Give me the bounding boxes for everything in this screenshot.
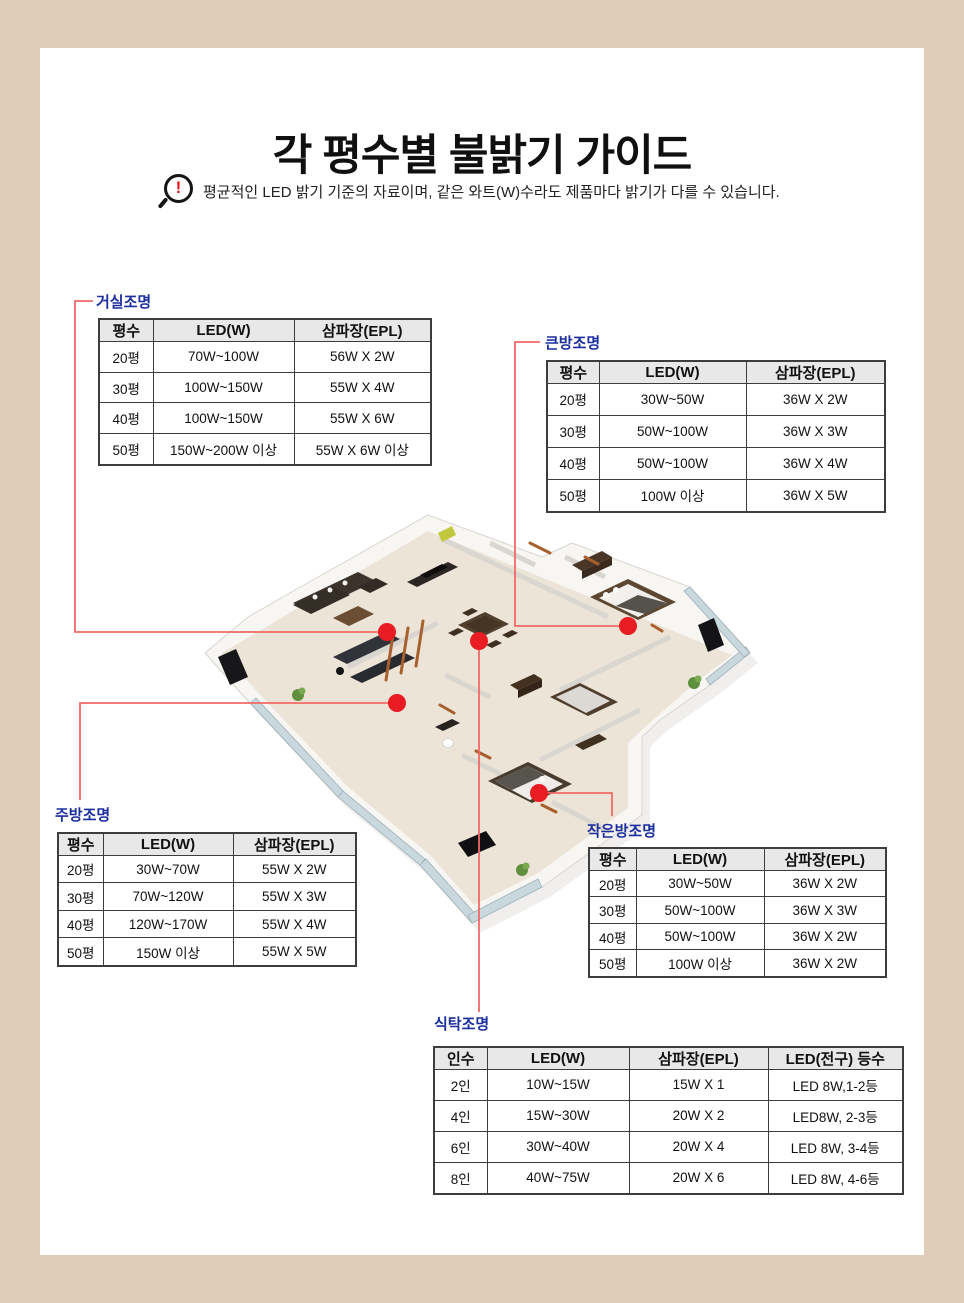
callout-label-living: 거실조명 [96,291,151,312]
table-cell: 30평 [99,372,153,403]
column-header: 삼파장(EPL) [294,319,431,342]
table-header-row: 평수LED(W)삼파장(EPL) [99,319,431,342]
table-cell: 40평 [589,923,636,949]
table-cell: LED 8W, 3-4등 [768,1131,903,1162]
table-cell: 36W X 4W [746,447,885,479]
table-cell: 20평 [99,342,153,373]
table-row: 40평50W~100W36W X 4W [547,447,885,479]
table-cell: 30W~70W [103,856,233,883]
smallroom-guide-table: 평수LED(W)삼파장(EPL)20평30W~50W36W X 2W30평50W… [588,847,887,978]
table-row: 30평70W~120W55W X 3W [58,883,356,910]
table-cell: 50W~100W [636,923,764,949]
table-header-row: 인수LED(W)삼파장(EPL)LED(전구) 등수 [434,1047,903,1070]
table-cell: 20평 [58,856,103,883]
table-cell: 30W~40W [487,1131,629,1162]
table-cell: 40평 [547,447,599,479]
table-cell: 40평 [58,910,103,937]
table-row: 40평50W~100W36W X 2W [589,923,886,949]
table-cell: LED 8W, 4-6등 [768,1162,903,1194]
table-cell: LED8W, 2-3등 [768,1100,903,1131]
table-cell: 50W~100W [599,447,746,479]
table-cell: 20평 [547,384,599,416]
table-row: 20평30W~50W36W X 2W [547,384,885,416]
table-row: 50평150W 이상55W X 5W [58,938,356,966]
table-cell: 30W~50W [636,871,764,897]
table-cell: 30평 [589,897,636,923]
table-cell: 150W~200W 이상 [153,434,294,465]
dining-table-container: 인수LED(W)삼파장(EPL)LED(전구) 등수2인10W~15W15W X… [433,1046,902,1195]
callout-label-kitchen: 주방조명 [55,804,110,825]
table-row: 20평30W~70W55W X 2W [58,856,356,883]
column-header: LED(W) [599,361,746,384]
table-cell: 6인 [434,1131,487,1162]
table-cell: 100W 이상 [599,479,746,512]
column-header: 평수 [589,848,636,871]
table-cell: 36W X 2W [764,923,886,949]
table-row: 4인15W~30W20W X 2LED8W, 2-3등 [434,1100,903,1131]
callout-label-smallroom: 작은방조명 [587,820,656,841]
table-cell: 100W~150W [153,403,294,434]
living-guide-table: 평수LED(W)삼파장(EPL)20평70W~100W56W X 2W30평10… [98,318,432,466]
table-cell: 55W X 4W [233,910,356,937]
table-cell: 50평 [547,479,599,512]
table-cell: 120W~170W [103,910,233,937]
column-header: 삼파장(EPL) [746,361,885,384]
table-cell: 50평 [589,950,636,977]
table-row: 40평120W~170W55W X 4W [58,910,356,937]
table-cell: 20W X 6 [629,1162,768,1194]
table-cell: 36W X 2W [764,871,886,897]
table-cell: 100W 이상 [636,950,764,977]
table-row: 40평100W~150W55W X 6W [99,403,431,434]
table-cell: 36W X 2W [764,950,886,977]
table-cell: LED 8W,1-2등 [768,1070,903,1101]
dining-guide-table: 인수LED(W)삼파장(EPL)LED(전구) 등수2인10W~15W15W X… [433,1046,904,1195]
table-row: 30평100W~150W55W X 4W [99,372,431,403]
callout-label-bigroom: 큰방조명 [545,332,600,353]
living-table-container: 평수LED(W)삼파장(EPL)20평70W~100W56W X 2W30평10… [98,318,430,466]
table-cell: 50평 [58,938,103,966]
table-header-row: 평수LED(W)삼파장(EPL) [547,361,885,384]
kitchen-table-container: 평수LED(W)삼파장(EPL)20평30W~70W55W X 2W30평70W… [57,832,355,967]
table-cell: 50평 [99,434,153,465]
table-cell: 36W X 5W [746,479,885,512]
table-cell: 15W~30W [487,1100,629,1131]
table-cell: 55W X 2W [233,856,356,883]
table-cell: 10W~15W [487,1070,629,1101]
column-header: 삼파장(EPL) [764,848,886,871]
table-cell: 20평 [589,871,636,897]
table-cell: 40W~75W [487,1162,629,1194]
bigroom-guide-table: 평수LED(W)삼파장(EPL)20평30W~50W36W X 2W30평50W… [546,360,886,513]
infographic-page: { "page": { "title": "각 평수별 불밝기 가이드", "n… [0,0,964,1303]
column-header: 인수 [434,1047,487,1070]
table-cell: 55W X 6W 이상 [294,434,431,465]
table-cell: 20W X 2 [629,1100,768,1131]
table-row: 6인30W~40W20W X 4LED 8W, 3-4등 [434,1131,903,1162]
page-title: 각 평수별 불밝기 가이드 [40,121,924,183]
smallroom-table-container: 평수LED(W)삼파장(EPL)20평30W~50W36W X 2W30평50W… [588,847,885,978]
table-cell: 70W~120W [103,883,233,910]
kitchen-guide-table: 평수LED(W)삼파장(EPL)20평30W~70W55W X 2W30평70W… [57,832,357,967]
table-cell: 30평 [547,415,599,447]
table-cell: 40평 [99,403,153,434]
column-header: LED(전구) 등수 [768,1047,903,1070]
notice-text: 평균적인 LED 밝기 기준의 자료이며, 같은 와트(W)수라도 제품마다 밝… [203,183,883,202]
bigroom-table-container: 평수LED(W)삼파장(EPL)20평30W~50W36W X 2W30평50W… [546,360,884,513]
table-cell: 55W X 3W [233,883,356,910]
table-cell: 55W X 5W [233,938,356,966]
table-cell: 4인 [434,1100,487,1131]
column-header: 평수 [58,833,103,856]
column-header: LED(W) [103,833,233,856]
table-cell: 8인 [434,1162,487,1194]
table-cell: 36W X 3W [764,897,886,923]
column-header: 평수 [547,361,599,384]
table-cell: 100W~150W [153,372,294,403]
table-row: 2인10W~15W15W X 1LED 8W,1-2등 [434,1070,903,1101]
table-cell: 55W X 6W [294,403,431,434]
table-row: 50평150W~200W 이상55W X 6W 이상 [99,434,431,465]
column-header: LED(W) [153,319,294,342]
table-cell: 70W~100W [153,342,294,373]
table-row: 50평100W 이상36W X 2W [589,950,886,977]
magnifier-exclamation-icon [164,174,193,203]
column-header: 삼파장(EPL) [233,833,356,856]
table-row: 20평70W~100W56W X 2W [99,342,431,373]
column-header: 평수 [99,319,153,342]
table-cell: 50W~100W [599,415,746,447]
table-cell: 56W X 2W [294,342,431,373]
table-cell: 36W X 2W [746,384,885,416]
column-header: 삼파장(EPL) [629,1047,768,1070]
column-header: LED(W) [487,1047,629,1070]
table-cell: 20W X 4 [629,1131,768,1162]
table-cell: 55W X 4W [294,372,431,403]
table-cell: 2인 [434,1070,487,1101]
table-row: 30평50W~100W36W X 3W [589,897,886,923]
table-row: 20평30W~50W36W X 2W [589,871,886,897]
table-row: 8인40W~75W20W X 6LED 8W, 4-6등 [434,1162,903,1194]
table-cell: 15W X 1 [629,1070,768,1101]
table-row: 50평100W 이상36W X 5W [547,479,885,512]
column-header: LED(W) [636,848,764,871]
table-cell: 150W 이상 [103,938,233,966]
table-cell: 50W~100W [636,897,764,923]
callout-label-dining: 식탁조명 [434,1013,489,1034]
table-header-row: 평수LED(W)삼파장(EPL) [589,848,886,871]
table-cell: 36W X 3W [746,415,885,447]
table-header-row: 평수LED(W)삼파장(EPL) [58,833,356,856]
table-cell: 30평 [58,883,103,910]
table-cell: 30W~50W [599,384,746,416]
table-row: 30평50W~100W36W X 3W [547,415,885,447]
